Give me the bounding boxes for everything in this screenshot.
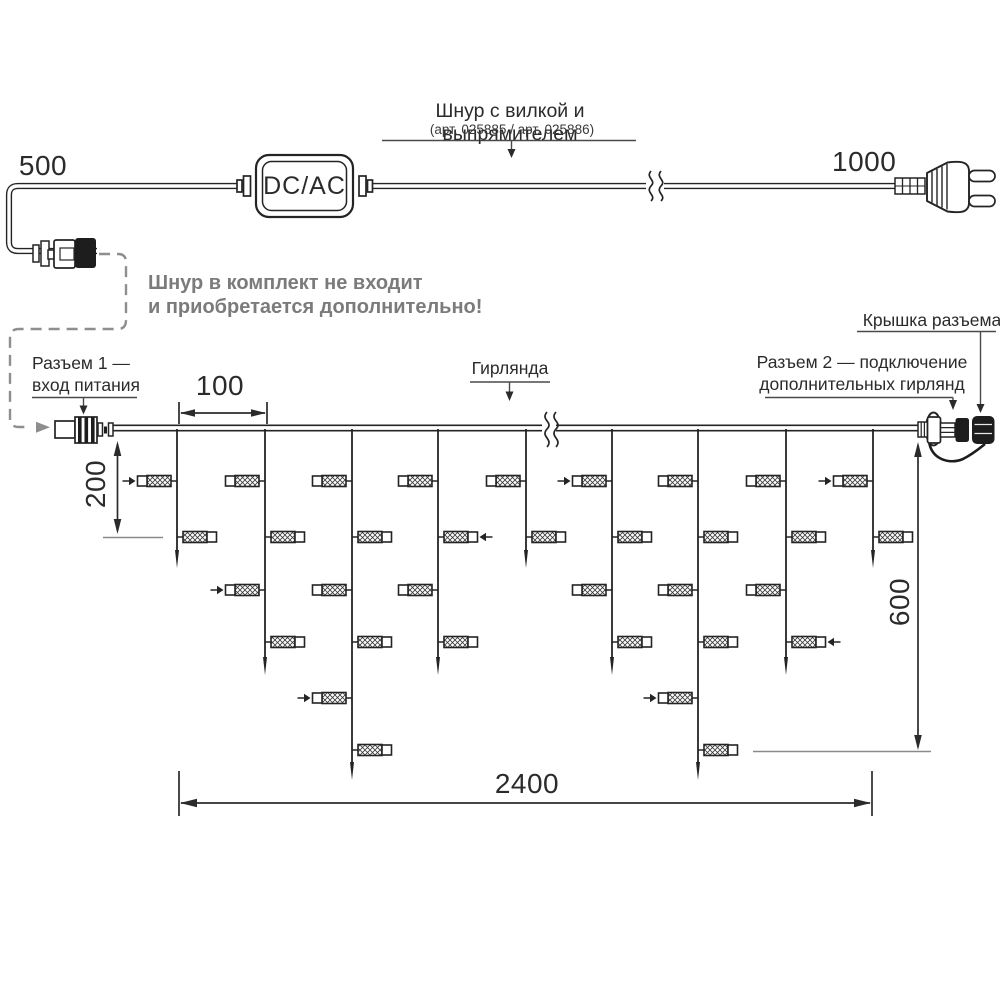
lamp-cap	[728, 637, 738, 647]
lamp-body	[235, 476, 259, 487]
lamp-body	[704, 637, 728, 648]
garland-input-connector	[55, 417, 113, 443]
lamp-body	[668, 693, 692, 704]
lamp-cap	[468, 532, 478, 542]
lamp-body	[792, 532, 816, 543]
cable-break-icon	[649, 171, 652, 201]
drop-tip	[175, 550, 179, 568]
lamp-body	[618, 532, 642, 543]
lamp-body	[444, 532, 468, 543]
lamp-cap	[816, 532, 826, 542]
lamp-body	[358, 637, 382, 648]
lamp-body	[271, 637, 295, 648]
plug-prong	[969, 171, 995, 182]
drop-tip	[610, 657, 614, 675]
lamp-body	[496, 476, 520, 487]
plug-cable	[371, 171, 896, 201]
lamp-cap	[313, 693, 323, 703]
drop-tip	[871, 550, 875, 568]
lamp-body	[756, 476, 780, 487]
lamp-body	[322, 476, 346, 487]
lamp-body	[582, 585, 606, 596]
dim-600-label: 600	[886, 574, 914, 630]
lamp-cap	[642, 532, 652, 542]
lamp-body	[618, 637, 642, 648]
lamp-cap	[728, 532, 738, 542]
drop-tip	[784, 657, 788, 675]
lamp-body	[879, 532, 903, 543]
dashed-connection-line	[10, 254, 126, 433]
lamp-body	[704, 532, 728, 543]
lamp-cap	[207, 532, 217, 542]
drop-tip	[263, 657, 267, 675]
lamp-cap	[659, 476, 669, 486]
adapter-output-connector	[33, 238, 96, 268]
lamp-cap	[728, 745, 738, 755]
lamp-cap	[313, 585, 323, 595]
garland-output-connector	[918, 413, 995, 462]
lamp-cap	[747, 476, 757, 486]
adapter-label: DC/AC	[256, 155, 353, 217]
dim-500-label: 500	[18, 150, 68, 182]
lamp-body	[271, 532, 295, 543]
dim-200-lines	[103, 441, 163, 538]
lamp-cap	[399, 585, 409, 595]
connector2-label: Разъем 2 — подключение дополнительных ги…	[752, 351, 972, 395]
lamp-body	[792, 637, 816, 648]
drop-tip	[350, 762, 354, 780]
lamp-cap	[382, 637, 392, 647]
drop-tip	[696, 762, 700, 780]
lamp-body	[322, 693, 346, 704]
mains-plug	[895, 162, 995, 212]
cable-break-icon	[659, 171, 662, 201]
drop-tip	[524, 550, 528, 568]
lamp-body	[444, 637, 468, 648]
lamp-cap	[226, 585, 236, 595]
lamp-cap	[573, 476, 583, 486]
lamp-cap	[747, 585, 757, 595]
connector-cap-label: Крышка разъема	[861, 309, 1000, 331]
lamp-cap	[903, 532, 913, 542]
lamp-body	[704, 745, 728, 756]
connector1-label: Разъем 1 — вход питания	[32, 352, 140, 396]
lamp-cap	[295, 532, 305, 542]
lamp-body	[183, 532, 207, 543]
dashed-arrow-icon	[36, 422, 50, 433]
lamp-body	[532, 532, 556, 543]
plug-prong	[969, 196, 995, 207]
lamp-body	[358, 745, 382, 756]
garland-label: Гирлянда	[460, 357, 560, 379]
lamp-cap	[295, 637, 305, 647]
lamp-cap	[382, 532, 392, 542]
dim-100-label: 100	[189, 370, 251, 402]
lamp-body	[147, 476, 171, 487]
connector-cap	[972, 416, 995, 444]
note-line-2: и приобретается дополнительно!	[148, 295, 482, 319]
lamp-body	[668, 585, 692, 596]
garland-break-icon	[543, 412, 558, 448]
dim-2400-label: 2400	[487, 768, 567, 800]
lamp-cap	[313, 476, 323, 486]
lamp-body	[668, 476, 692, 487]
lamp-cap	[487, 476, 497, 486]
note-line-1: Шнур в комплект не входит	[148, 271, 482, 295]
drop-tip	[436, 657, 440, 675]
lamp-body	[582, 476, 606, 487]
lamp-cap	[659, 585, 669, 595]
lamp-cap	[399, 476, 409, 486]
dim-1000-label: 1000	[832, 146, 894, 178]
note-not-included: Шнур в комплект не входит и приобретаетс…	[148, 271, 482, 319]
lamp-cap	[659, 693, 669, 703]
lamp-body	[358, 532, 382, 543]
lamp-body	[408, 585, 432, 596]
lamp-cap	[556, 532, 566, 542]
lamp-cap	[226, 476, 236, 486]
lamp-cap	[468, 637, 478, 647]
lamp-body	[843, 476, 867, 487]
dim-100-lines	[179, 402, 267, 424]
lamp-cap	[834, 476, 844, 486]
power-cord-subtitle: (арт. 025885 / арт. 025886)	[381, 122, 643, 137]
dim-200-label: 200	[82, 456, 110, 512]
lamp-body	[322, 585, 346, 596]
lamp-cap	[138, 476, 148, 486]
lamp-body	[756, 585, 780, 596]
lamp-body	[408, 476, 432, 487]
lamp-cap	[382, 745, 392, 755]
garland-drops	[123, 429, 913, 780]
technical-diagram: 500 1000 Шнур с вилкой и выпрямителем (а…	[0, 0, 1000, 1000]
lamp-cap	[642, 637, 652, 647]
lamp-body	[235, 585, 259, 596]
lamp-cap	[816, 637, 826, 647]
lamp-cap	[573, 585, 583, 595]
